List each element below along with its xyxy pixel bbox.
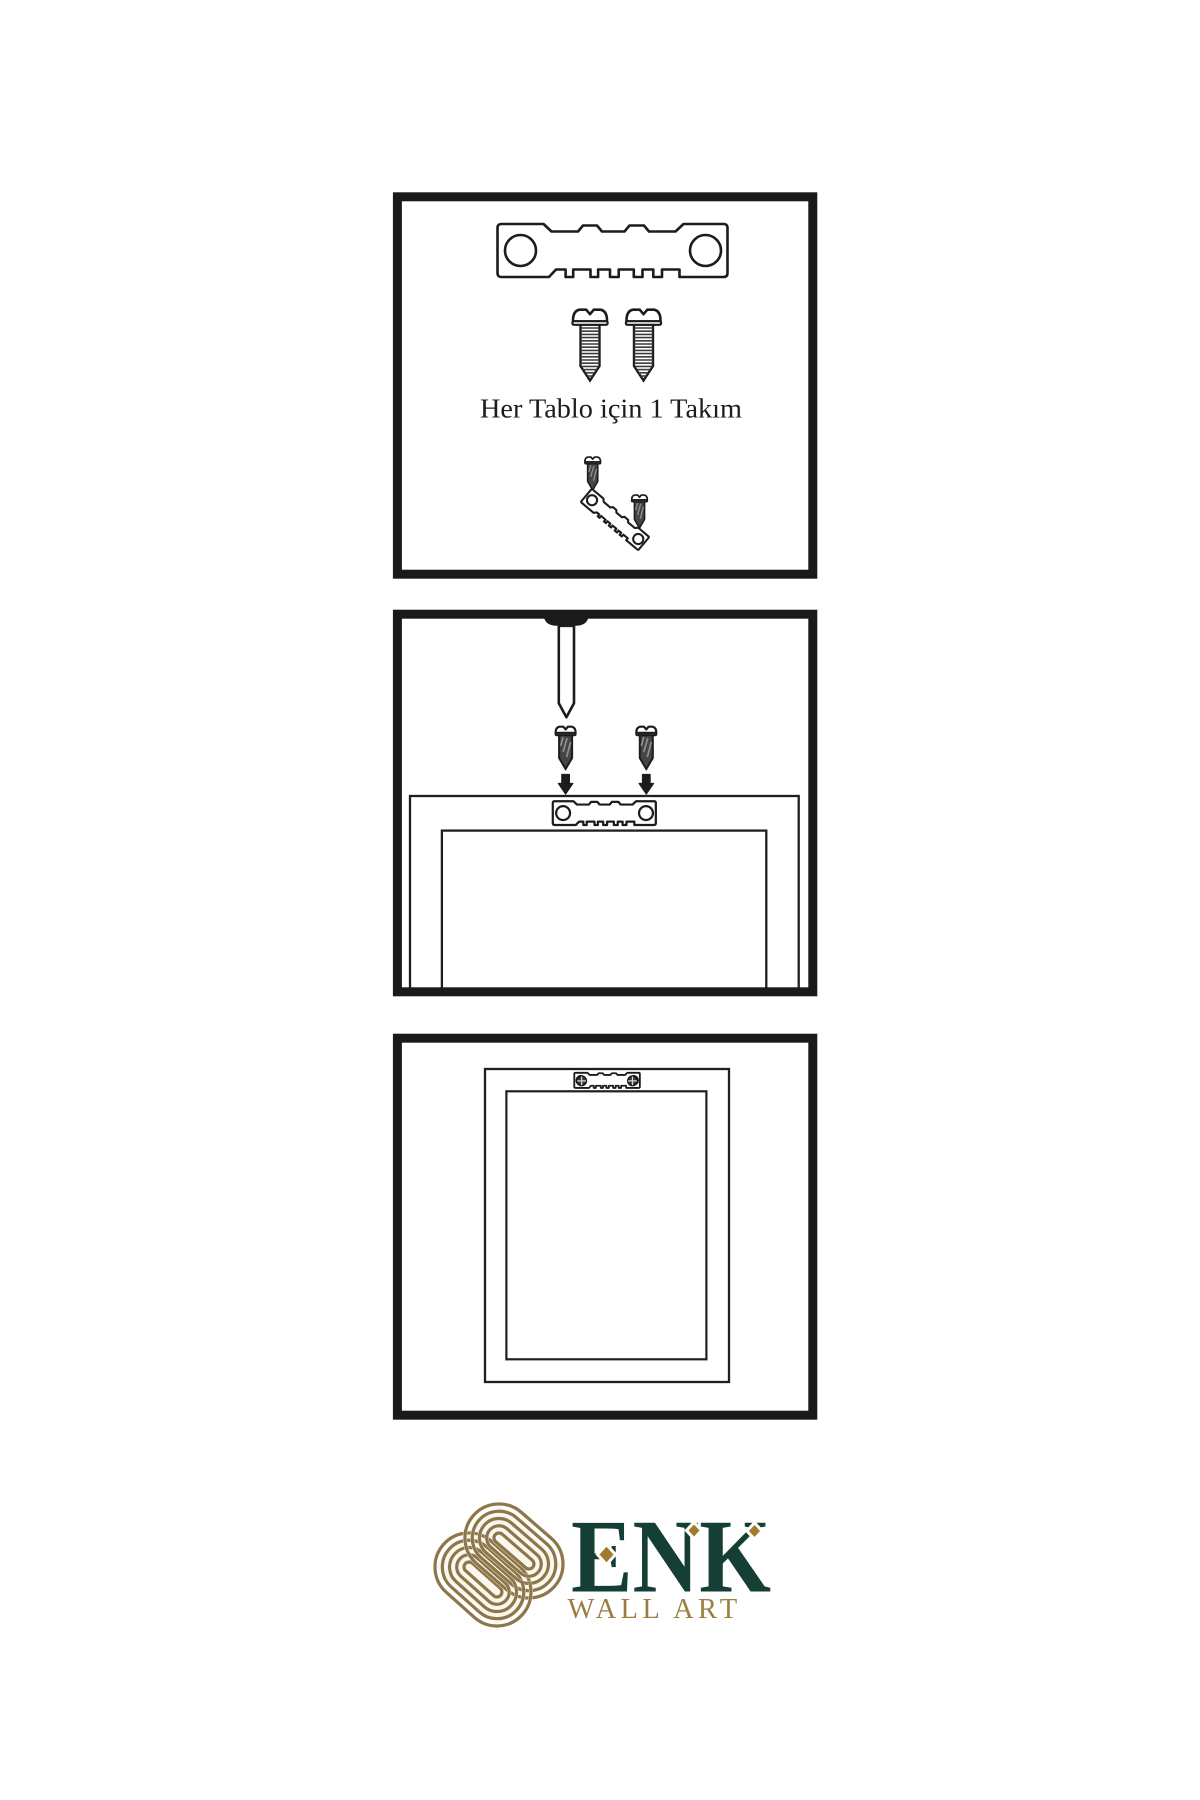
svg-text:WALL ART: WALL ART: [567, 1594, 741, 1625]
svg-text:Her Tablo için 1 Takım: Her Tablo için 1 Takım: [480, 394, 742, 424]
